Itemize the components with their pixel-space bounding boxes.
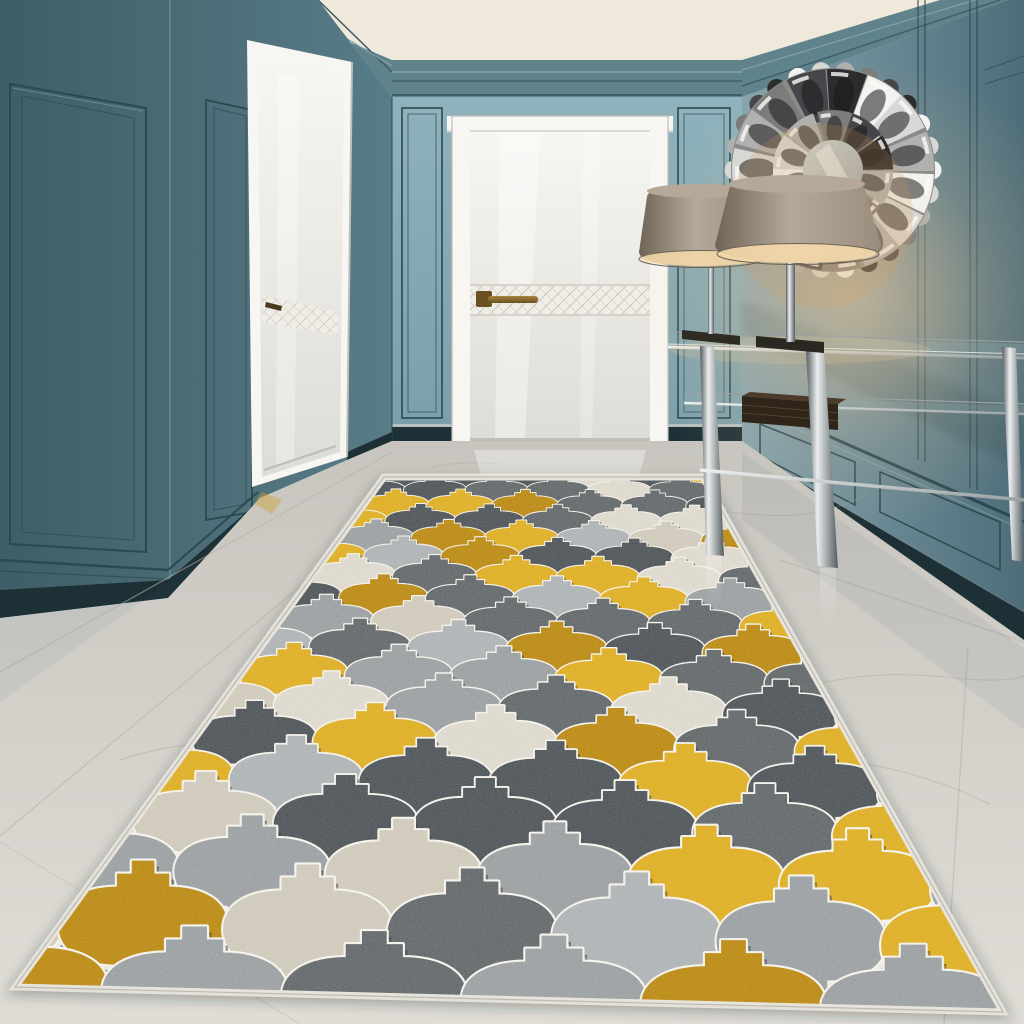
left-door xyxy=(247,40,352,487)
lamp-stem-left xyxy=(708,260,714,334)
hallway-rug-product-photo xyxy=(0,0,1024,1024)
lamp-stem-right xyxy=(786,250,795,342)
